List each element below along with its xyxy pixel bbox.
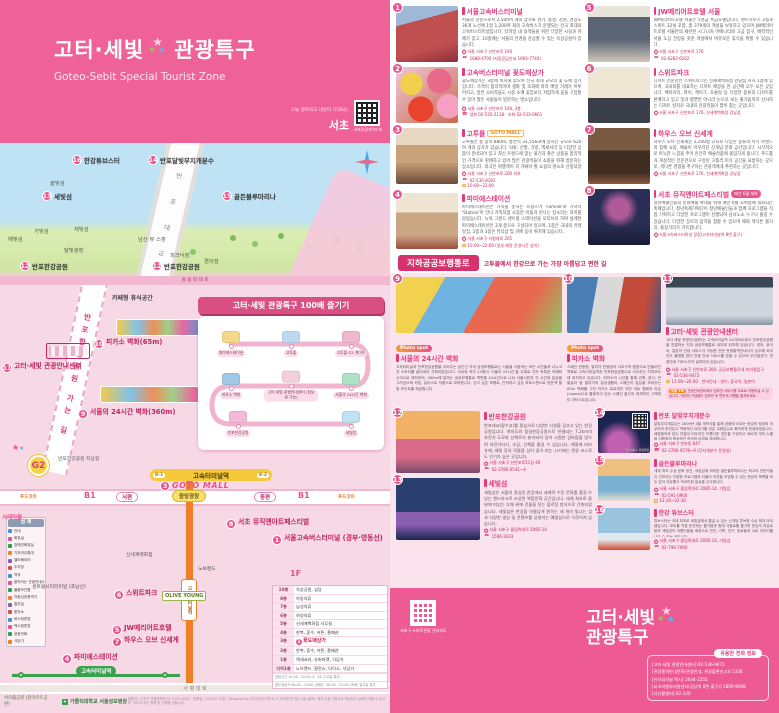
street-poi: 카페형 휴식공간 [112, 293, 153, 302]
street-poi-label: GOTO MALL [172, 481, 229, 490]
illustrated-park-map: 반 포 대 교 16한강튜브스터14반포달빛무지개분수15골든블루마리나13세빛… [0, 143, 390, 285]
park-map-label: 14반포달빛무지개분수 [148, 155, 214, 165]
street-poi-label: 스위트파크 [126, 590, 157, 598]
park-map-label: 15골든블루마리나 [222, 191, 276, 201]
item-number-badge: 6 [584, 63, 595, 74]
attraction-photo: 9 [396, 277, 562, 333]
attraction-title-row: 고속버스터미널 꽃도매상가 [462, 67, 582, 77]
street-poi: 11고터·세빛 관광안내센터 [2, 363, 81, 373]
course-stop-icon [342, 331, 360, 343]
course-stop-label: 세빛섬 [344, 430, 358, 437]
street-poi: 1서울고속버스터미널 (경부·영동선) [272, 535, 383, 545]
marker-number: 12 [152, 261, 162, 271]
course-stop: 파미에스테이션 [204, 331, 258, 357]
marker-number: 14 [148, 155, 158, 165]
meta-pin: 서울 서초구 신반포로 200 지하 [462, 171, 582, 177]
tel-icon: ☎ [666, 373, 672, 378]
phone-entry: [관광통역안내전화(관광안내, 관광불편신고)] 1330 [652, 668, 764, 675]
phone-entry: [서초여행자지원센터(강남역 8번 출구)] 1800-9008 [652, 683, 764, 690]
attraction-title-row: 고터·세빛 관광안내센터 [666, 326, 773, 336]
park-map-label: 편의점 [204, 257, 219, 265]
street-poi: 1F [290, 569, 301, 578]
pin-icon [654, 233, 658, 238]
course-stop-icon [282, 331, 300, 343]
attraction-meta: 서울 서초구 신반포로 200 지하☎02-535-818210:00~22:0… [462, 171, 582, 188]
attraction-title: 서울고속버스터미널 [467, 6, 523, 16]
phone-entry: [다산콜센터] 02-120 [652, 690, 764, 697]
title-bar [666, 327, 669, 335]
title-bar [654, 190, 657, 198]
attraction-title: 하우스 오브 신세계 [658, 128, 713, 138]
street-poi-label: 파미에스테이션 [74, 654, 118, 662]
header: 고터·세빛 ★★★ 관광특구 Goteo-Sebit Special Touri… [0, 0, 390, 143]
marker-number: 11 [2, 363, 12, 373]
attraction-meta: 서울 서초구 반포동 647☎02-3780-0578~9 (무지개분수 운영실… [654, 441, 773, 454]
attraction-meta: 서울 서초구 신반포로 176, 신세계백화점 강남점 [654, 110, 774, 116]
qr-caption: 무지개분수 운영일정 [625, 448, 649, 452]
street-poi-label: JW메리어트호텔 [124, 625, 172, 633]
attraction-description: 디저트 전문관인 스위트파크는 신세계백화점 강남점 지하 1층에 있으며, 국… [654, 79, 774, 109]
street-poi: 10피카소 벽화(65m) [94, 339, 162, 349]
street-poi: 서편 [116, 492, 138, 502]
attraction-title-row: JW메리어트호텔 서울 [654, 6, 774, 16]
attraction-meta: 서울 서초구 신반포로 300, 공공보행통로내 지하철입구☎02-536-94… [666, 367, 773, 385]
item-number-badge: 4 [392, 189, 403, 200]
attraction-title: 세빛섬 [489, 478, 508, 488]
phone-info-title: 유용한 전화 정보 [714, 649, 762, 658]
item-number-badge: 10 [563, 273, 574, 284]
meta-clock: 10:00~22:00 (일부 매장 운영시간 상이) [462, 243, 582, 249]
attraction-title: 한강 튜브스터 [659, 508, 694, 517]
attraction-photo: 3 [396, 128, 458, 184]
street-poi-label: 푸드코트 [20, 494, 37, 500]
pin-icon [654, 442, 658, 447]
attraction-meta: 서울 서초구 신반포로 176☎02-6282-6262 [654, 49, 774, 61]
meta-pin: 서울 서초구 신반포로 176 [654, 49, 774, 55]
footer-logo: 고터·세빛 ★★★ 관광특구 [586, 608, 677, 649]
meta-tel: ☎02-536-9472 [666, 373, 773, 378]
attraction-text: 하우스 오브 신세계하우스 오브 신세계는 2,200평 규모로 다양한 종류의… [654, 128, 774, 184]
smart-map-qr: 서초구 스마트관광 전자지도 [400, 600, 447, 633]
attraction-meta: 서울 서초구 신반포로 194, 3층☎생화 02-535-2118 · 조화 … [462, 106, 582, 119]
attraction-item-6: 6스위트파크디저트 전문관인 스위트파크는 신세계백화점 강남점 지하 1층에 … [588, 67, 774, 123]
course-stop-label: 피카소 벽화 [220, 392, 243, 399]
phone-entry: [인터내셔널 택시] 1644-2255 [652, 676, 764, 683]
brochure-footer: 서초구 스마트관광 전자지도 고터·세빛 ★★★ 관광특구 유용한 전화 정보 … [390, 588, 779, 713]
attraction-title: 골든블루마리나 [659, 459, 698, 468]
attraction-text: 서울고속버스터미널서울의 관문으로서 2,500여 개의 상가와 경기, 충청,… [462, 6, 582, 62]
title-bar [462, 194, 465, 202]
attraction-text: Photo spot피카소 벽화스페인 관광청, 말라가 관광청과 서초구의 협… [567, 334, 661, 403]
course-stop: 세빛섬 [324, 411, 378, 437]
meta-pin: 서울고속버스터미널 광장(고속터미널역 8번 출구) [654, 232, 774, 238]
course-panel-title: 고터·세빛 관광특구 100배 즐기기 [198, 297, 384, 314]
pin-icon [484, 461, 488, 466]
item-number-badge: 2 [392, 63, 403, 74]
attraction-title: 반포 달빛무지개분수 [659, 411, 711, 420]
street-poi-label: 반포한강공원 지상길 [58, 457, 99, 463]
street-poi-label: 동편 [254, 492, 276, 502]
guidebook-qr: 서초관광가이드북 [354, 100, 382, 133]
marker-number: 16 [72, 155, 82, 165]
street-poi-label: 중앙광장 [172, 490, 206, 502]
attraction-description: 고투몰은 총 길이 880m, 총면적 31,556㎡에 달하는 규모로 620… [462, 140, 582, 170]
attraction-photo: 16 [598, 508, 650, 550]
meta-pin: 서울 서초구 사평대로 205 [462, 236, 582, 242]
attraction-title: 고터·세빛 관광안내센터 [671, 326, 738, 336]
attraction-photo: 11 [666, 277, 773, 325]
marker-number: 13 [42, 191, 52, 201]
attraction-item-8: 8서초 뮤직앤아트페스티벌매년 6월 개최청년예술인들의 문화예술 확대를 위해… [588, 189, 774, 245]
attraction-description: 서울의 관문으로서 2,500여 개의 상가와 경기, 충청, 강원, 경상도 … [462, 18, 582, 48]
course-stop-label: 서울의 24시간 벽화 [333, 392, 369, 399]
park-map-label: 13세빛섬 [42, 191, 72, 201]
tel-icon: ☎ [654, 449, 660, 454]
street-poi-label: B1 [298, 491, 310, 500]
attraction-title-row: 서초 뮤직앤아트페스티벌매년 6월 개최 [654, 189, 774, 199]
title-bar [654, 129, 657, 137]
meta-clock: 10:00~22:00 [462, 183, 582, 188]
park-map-label: 채빛섬 [74, 225, 89, 233]
street-poi: 6스위트파크 [114, 590, 157, 600]
attraction-title-row: 서울고속버스터미널 [462, 6, 582, 16]
street-poi: 푸드코트 [20, 494, 37, 500]
attraction-text: 반포한강공원반포대교(잠수교)를 중심으로 다양한 시설을 갖추고 있는 한강공… [484, 411, 592, 473]
marker-number: 10 [94, 339, 104, 349]
meta-pin: 서울 서초구 신반포로 300, 공공보행통로내 지하철입구 [666, 367, 773, 373]
street-poi-label: 서초 뮤직앤아트페스티벌 [238, 519, 309, 527]
street-poi-label: 서울의 24시간 벽화(360m) [90, 409, 175, 417]
meta-tel: ☎생화 02-535-2118 · 조화 02-533-0661 [462, 112, 582, 118]
item-number-badge: 5 [584, 2, 595, 13]
tel-icon: ☎ [654, 545, 660, 550]
attraction-text: 세빛섬세빛섬은 서울의 중심인 한강에서 세계적 수준 문화를 즐길 수 있는 … [484, 478, 592, 540]
pin-icon [654, 487, 658, 492]
page-subtitle: Goteo-Sebit Special Tourist Zone [54, 71, 390, 83]
attraction-item-12: 12반포한강공원반포대교(잠수교)를 중심으로 다양한 시설을 갖추고 있는 한… [396, 411, 592, 473]
course-stop-node [229, 344, 234, 349]
course-stop-node [349, 344, 354, 349]
attraction-text: 골든블루마리나세계 최초 수상 문화 공간, 세빛섬에 위치한 골든블루마리나는… [654, 459, 773, 504]
course-stop: 반포한강공원 [211, 411, 265, 437]
attraction-text: 고터·세빛 관광안내센터고터·세빛 관광안내센터는 고속터미널역 G2게이트에서… [666, 326, 773, 400]
title-bar [654, 68, 657, 76]
meta-pin: 서울 서초구 올림픽대로 2085-14 [484, 527, 592, 533]
meta-pin: 서울 서초구 신반포로 176, 신세계백화점 강남점 [654, 171, 774, 177]
attraction-photo: 2 [396, 67, 458, 123]
tel-icon: ☎ [484, 534, 490, 539]
street-poi-label: 서래마을 [2, 513, 22, 521]
murals-section: 9Photo spot서울의 24시간 벽화고속터미널과 반포한강공원을 이어주… [390, 273, 779, 407]
attraction-meta: 서울 서초구 신반포로11길 40☎02-3780-0541~4 [484, 460, 592, 472]
info-panel: 1서울고속버스터미널서울의 관문으로서 2,500여 개의 상가와 경기, 충청… [390, 0, 779, 713]
street-poi-label: 센트럴시티터미널 (호남선) [32, 585, 86, 591]
street-poi: 4파미에스테이션 [62, 654, 118, 664]
info-center-slot: 11고터·세빛 관광안내센터고터·세빛 관광안내센터는 고속터미널역 G2게이트… [666, 277, 773, 403]
marker-number: 3 [160, 481, 170, 491]
attraction-item-9: 9Photo spot서울의 24시간 벽화고속터미널과 반포한강공원을 이어주… [396, 277, 562, 392]
course-stop-label: 고투몰 G2 게이트 [335, 350, 368, 357]
street-poi: 푸드코트 [338, 494, 355, 500]
attraction-item-15: 15골든블루마리나세계 최초 수상 문화 공간, 세빛섬에 위치한 골든블루마리… [598, 459, 773, 504]
marker-number: 7 [112, 637, 122, 647]
attraction-meta: 서울고속버스터미널 광장(고속터미널역 8번 출구) [654, 232, 774, 238]
street-poi-label: 서편 [116, 492, 138, 502]
attraction-title: JW메리어트호텔 서울 [658, 6, 720, 16]
attraction-text: 한강 튜브스터튜브스터는 국내 최초로 세빛섬에서 즐길 수 있는 신개념 튜브… [654, 508, 773, 550]
street-poi-label: OLIVE YOUNG [162, 591, 206, 601]
attraction-photo: 5 [588, 6, 650, 62]
title-bar [462, 129, 465, 137]
page-title: 고터·세빛 ★★★ 관광특구 [54, 34, 390, 64]
meta-clock: 13:30~22:30 [654, 498, 773, 503]
attraction-photo: 14무지개분수 운영일정 [598, 411, 650, 453]
marker-number: 12 [20, 261, 30, 271]
seocho-logo: 오늘 행복하고 내일이 기대되는 서초 [291, 108, 349, 133]
title-bar [654, 412, 657, 420]
tel-icon: ☎ [462, 56, 468, 61]
clock-icon [654, 499, 658, 503]
attraction-text: 고속버스터미널 꽃도매상가꽃도매상가는 3층에 위치해 있으며 전국 최대 규모… [462, 67, 582, 123]
attraction-title: 반포한강공원 [489, 411, 527, 421]
street-poi: 7하우스 오브 신세계 [112, 637, 179, 647]
meta-tel: ☎02-535-8182 [462, 178, 582, 183]
tel-icon: ☎ [462, 113, 468, 118]
street-poi: 3GOTO MALL [160, 481, 229, 491]
clock-icon [462, 184, 466, 188]
mural-24h-slot: 9Photo spot서울의 24시간 벽화고속터미널과 반포한강공원을 이어주… [396, 277, 562, 403]
street-poi-label: 고터·세빛 관광안내센터 [14, 363, 81, 371]
park-map-label: 남산 뷰 스팟 [138, 235, 166, 243]
course-stop-label: 파미에스테이션 [217, 350, 245, 357]
title-part-1: 고터·세빛 [54, 34, 144, 64]
luggage-notice: 이용 TIP관광안내센터에서 짐보관 서비스를 무료로 이용하실 수 있습니다.… [666, 387, 773, 401]
attraction-text: 서초 뮤직앤아트페스티벌매년 6월 개최청년예술인들의 문화예술 확대를 위해 … [654, 189, 774, 245]
park-map-label: 16한강튜브스터 [72, 155, 120, 165]
attractions-bottom: 12반포한강공원반포대교(잠수교)를 중심으로 다양한 시설을 갖추고 있는 한… [390, 407, 779, 588]
attraction-title: 서초 뮤직앤아트페스티벌 [658, 189, 729, 199]
attraction-photo: 7 [588, 128, 650, 184]
title-bar [396, 354, 399, 362]
attraction-item-16: 16한강 튜브스터튜브스터는 국내 최초로 세빛섬에서 즐길 수 있는 신개념 … [598, 508, 773, 550]
attraction-title: 파미에스테이션 [467, 193, 511, 203]
photo-spot-tag: Photo spot [396, 345, 432, 352]
meta-tel: ☎1566-3433 [484, 534, 592, 539]
tel-icon: ☎ [654, 56, 660, 61]
attraction-description: 세계 최초 수상 문화 공간, 세빛섬에 위치한 골든블루마리나는 최고의 전문… [654, 469, 773, 485]
street-poi: 노브랜드 [198, 567, 216, 573]
item-number-badge: 12 [392, 407, 403, 418]
street-poi-label: 푸드코트 [338, 494, 355, 500]
qr-code [354, 100, 380, 126]
attraction-item-7: 7하우스 오브 신세계하우스 오브 신세계는 2,200평 규모로 다양한 종류… [588, 128, 774, 184]
marker-number: 8 [226, 519, 236, 529]
attraction-item-3: 3고투몰GOTO MALL고투몰은 총 길이 880m, 총면적 31,556㎡… [396, 128, 582, 188]
course-stop: 피카소 벽화 [204, 373, 258, 399]
street-poi-label: 노브랜드 [198, 567, 216, 573]
phone-entries: [고터·세빛 관광안내센터] 02-536-9472[관광통역안내전화(관광안내… [652, 661, 764, 697]
item-number-badge: 9 [392, 273, 403, 284]
marker-number: 5 [112, 625, 122, 635]
mural-picasso-slot: 10Photo spot피카소 벽화스페인 관광청, 말라가 관광청과 서초구의… [567, 277, 661, 403]
clock-icon [462, 244, 466, 248]
attraction-meta: 서울 서초구 올림픽대로 2085-14☎1566-3433 [484, 527, 592, 539]
attraction-photo: 10 [567, 277, 661, 333]
attraction-item-13: 13세빛섬세빛섬은 서울의 중심인 한강에서 세계적 수준 문화를 즐길 수 있… [396, 478, 592, 540]
attraction-title-row: 스위트파크 [654, 67, 774, 77]
attraction-description: 파미에스테이션은 가족을 뜻하는 프랑스어 'Famille'와 기차역 'St… [462, 205, 582, 235]
item-number-badge: 13 [392, 474, 403, 485]
attraction-item-5: 5JW메리어트호텔 서울JW메리어트호텔 서울은 5성급 특급호텔입니다. 펜트… [588, 6, 774, 62]
river-column-left: 12반포한강공원반포대교(잠수교)를 중심으로 다양한 시설을 갖추고 있는 한… [396, 411, 592, 582]
tel-icon: ☎ [654, 493, 660, 498]
star-cluster-icon: ★★★ [150, 40, 168, 58]
park-map-label: 12반포한강공원 [152, 261, 200, 271]
attraction-description: 세빛섬은 서울의 중심인 한강에서 세계적 수준 문화를 즐길 수 있는 랜드마… [484, 490, 592, 526]
attraction-title-row: 파미에스테이션 [462, 193, 582, 203]
attraction-description: 꽃도매상가는 3층에 위치해 있으며 전국 최대 규모의 꽃 도매 상가입니다.… [462, 79, 582, 105]
title-bar [654, 459, 657, 467]
attraction-meta: 서울 서초구 올림픽대로 2085-14, 가빛섬☎02-591-090013:… [654, 486, 773, 503]
attraction-title-row: 세빛섬 [484, 478, 592, 488]
course-stop-icon [282, 371, 300, 383]
attraction-title-row: 반포 달빛무지개분수 [654, 411, 773, 420]
attraction-meta: 서울 서초구 신반포로 194☎1688-4700 (자동응답안내 1666-7… [462, 49, 582, 62]
item-number-badge: 16 [594, 504, 605, 515]
course-stop-label: 고터·세빛 관광안내센터 (짐보관 가능) [264, 390, 318, 402]
park-map-label: 가빛섬 [34, 227, 49, 235]
attraction-item-14: 14무지개분수 운영일정반포 달빛무지개분수달빛무지개분수는 2009년 4월 … [598, 411, 773, 454]
attraction-text: 스위트파크디저트 전문관인 스위트파크는 신세계백화점 강남점 지하 1층에 있… [654, 67, 774, 123]
attraction-description: 튜브스터는 국내 최초로 세빛섬에서 즐길 수 있는 신개념 튜브형 수상 레저… [654, 519, 773, 537]
meta-tel: ☎1688-4700 (자동응답안내 1666-7740) [462, 56, 582, 62]
meta-tel: ☎02-3780-0578~9 (무지개분수 운영실) [654, 448, 773, 454]
course-stop: 서울의 24시간 벽화 [324, 373, 378, 399]
attraction-item-1: 1서울고속버스터미널서울의 관문으로서 2,500여 개의 상가와 경기, 충청… [396, 6, 582, 62]
attraction-title-row: 서울의 24시간 벽화 [396, 353, 562, 363]
street-poi: 신세계백화점 [126, 553, 152, 559]
park-map-label: 피크닉장 [170, 251, 190, 259]
course-stop-node [349, 424, 354, 429]
course-stop-node [229, 386, 234, 391]
attraction-description: 청년예술인들의 문화예술 확대를 위해 매년 6월 초여름에 개최되는 축제입니… [654, 201, 774, 231]
corridor-banner-subtitle: 고투몰에서 한강으로 가는 가장 아름답고 편한 길 [484, 259, 607, 268]
park-map-label: 솔빛섬 [50, 179, 65, 187]
street-poi: 반포한강공원 지상길 [58, 457, 99, 463]
meta-pin: 서울 서초구 올림픽대로 2085-14, 가빛섬 [654, 486, 773, 492]
park-map-label: 예빛섬 [8, 235, 23, 243]
attraction-description: 하우스 오브 신세계는 2,200평 규모로 다양한 종류의 미식 브랜드와 함… [654, 140, 774, 170]
attractions-column-right: 5JW메리어트호텔 서울JW메리어트호텔 서울은 5성급 특급호텔입니다. 펜트… [588, 6, 774, 249]
attraction-title: 서울의 24시간 벽화 [401, 353, 459, 363]
course-stop-node [349, 386, 354, 391]
title-bar [484, 412, 487, 420]
attraction-photo: 13 [396, 478, 480, 540]
meta-tel: ☎02-6282-6262 [654, 56, 774, 61]
attraction-description: 스페인 관광청, 말라가 관광청과 서초구의 협업으로 만들어진 벽화로 고속터… [567, 365, 661, 404]
attraction-title: 스위트파크 [658, 67, 689, 77]
meta-pin: 서울 서초구 반포동 647 [654, 441, 773, 447]
tel-icon: ☎ [462, 178, 468, 183]
street-poi: OLIVE YOUNG [162, 591, 206, 601]
header-branding: 오늘 행복하고 내일이 기대되는 서초 서초관광가이드북 [291, 100, 382, 133]
title-part-2: 관광특구 [174, 34, 255, 64]
pin-icon [654, 539, 658, 544]
item-number-badge: 7 [584, 124, 595, 135]
park-map-label: 12반포한강공원 [20, 261, 68, 271]
street-poi-label: 하우스 오브 신세계 [124, 637, 179, 645]
meta-clock: 11:00~20:00 · 언어안내 : 영어, 중국어, 일본어 [666, 379, 773, 385]
meta-tel: ☎02-3780-0541~4 [484, 467, 592, 472]
event-badge: 매년 6월 개최 [731, 190, 761, 198]
item-number-badge: 8 [584, 185, 595, 196]
smart-map-qr-caption: 서초구 스마트관광 전자지도 [400, 628, 447, 633]
attractions-top: 1서울고속버스터미널서울의 관문으로서 2,500여 개의 상가와 경기, 충청… [390, 0, 779, 253]
attraction-title-row: 한강 튜브스터 [654, 508, 773, 517]
street-poi: 서래마을 [2, 513, 22, 521]
attraction-title-row: 고투몰GOTO MALL [462, 128, 582, 138]
meta-pin: 서울 서초구 올림픽대로 2085-14, 가빛섬 [654, 538, 773, 544]
pin-icon [484, 528, 488, 533]
attraction-item-2: 2고속버스터미널 꽃도매상가꽃도매상가는 3층에 위치해 있으며 전국 최대 규… [396, 67, 582, 123]
street-poi-label: 카페형 휴식공간 [112, 293, 153, 302]
title-bar [484, 479, 487, 487]
goto-mall-logo: GOTO MALL [487, 130, 523, 137]
attraction-title-row: 반포한강공원 [484, 411, 592, 421]
course-stop-icon [342, 411, 360, 423]
pin-icon [462, 172, 466, 177]
pin-icon [462, 237, 466, 242]
photo-spot-tag: Photo spot [567, 345, 603, 352]
course-stop-node [289, 344, 294, 349]
attraction-text: 파미에스테이션파미에스테이션은 가족을 뜻하는 프랑스어 'Famille'와 … [462, 193, 582, 249]
street-poi: 센트럴시티터미널 (호남선) [32, 585, 86, 591]
attraction-photo: 4 [396, 193, 458, 249]
attraction-meta: 서울 서초구 올림픽대로 2085-14, 가빛섬☎02-790-7090 [654, 538, 773, 550]
qr-caption: 서초관광가이드북 [354, 127, 382, 133]
meta-pin: 서울 서초구 신반포로11길 40 [484, 460, 592, 466]
item-number-badge: 14 [594, 407, 605, 418]
phone-entry: [고터·세빛 관광안내센터] 02-536-9472 [652, 661, 764, 668]
attraction-item-11: 11고터·세빛 관광안내센터고터·세빛 관광안내센터는 고속터미널역 G2게이트… [666, 277, 773, 400]
title-bar [654, 7, 657, 15]
attractions-column-left: 1서울고속버스터미널서울의 관문으로서 2,500여 개의 상가와 경기, 충청… [396, 6, 582, 249]
course-stop-node [236, 424, 241, 429]
street-poi: 5JW메리어트호텔 [112, 625, 172, 635]
course-stop-icon [222, 373, 240, 385]
course-stop-node [289, 384, 294, 389]
attraction-text: 고투몰GOTO MALL고투몰은 총 길이 880m, 총면적 31,556㎡에… [462, 128, 582, 188]
pin-icon [666, 367, 670, 372]
qr-code [632, 413, 648, 429]
clock-icon [666, 380, 670, 384]
map-panel: 고터·세빛 ★★★ 관광특구 Goteo-Sebit Special Touri… [0, 0, 390, 713]
attraction-text: Photo spot서울의 24시간 벽화고속터미널과 반포한강공원을 이어주는… [396, 334, 562, 392]
marker-number: 9 [78, 409, 88, 419]
corridor-banner-title: 지하공공보행통로 [398, 255, 479, 271]
pin-icon [654, 172, 658, 177]
attraction-meta: 서울 서초구 사평대로 20510:00~22:00 (일부 매장 운영시간 상… [462, 236, 582, 249]
course-stop-icon [222, 331, 240, 343]
street-poi: 8서초 뮤직앤아트페스티벌 [226, 519, 309, 529]
meta-tel: ☎02-790-7090 [654, 545, 773, 550]
attraction-photo: 1 [396, 6, 458, 62]
attraction-description: 고터·세빛 관광안내센터는 고속터미널역 G2게이트에서 반포한강공원을 연결하… [666, 338, 773, 366]
attraction-item-4: 4파미에스테이션파미에스테이션은 가족을 뜻하는 프랑스어 'Famille'와… [396, 193, 582, 249]
street-poi-label: 1F [290, 569, 301, 578]
attraction-title-row: 피카소 벽화 [567, 353, 661, 363]
street-poi-label: 피카소 벽화(65m) [106, 339, 162, 347]
